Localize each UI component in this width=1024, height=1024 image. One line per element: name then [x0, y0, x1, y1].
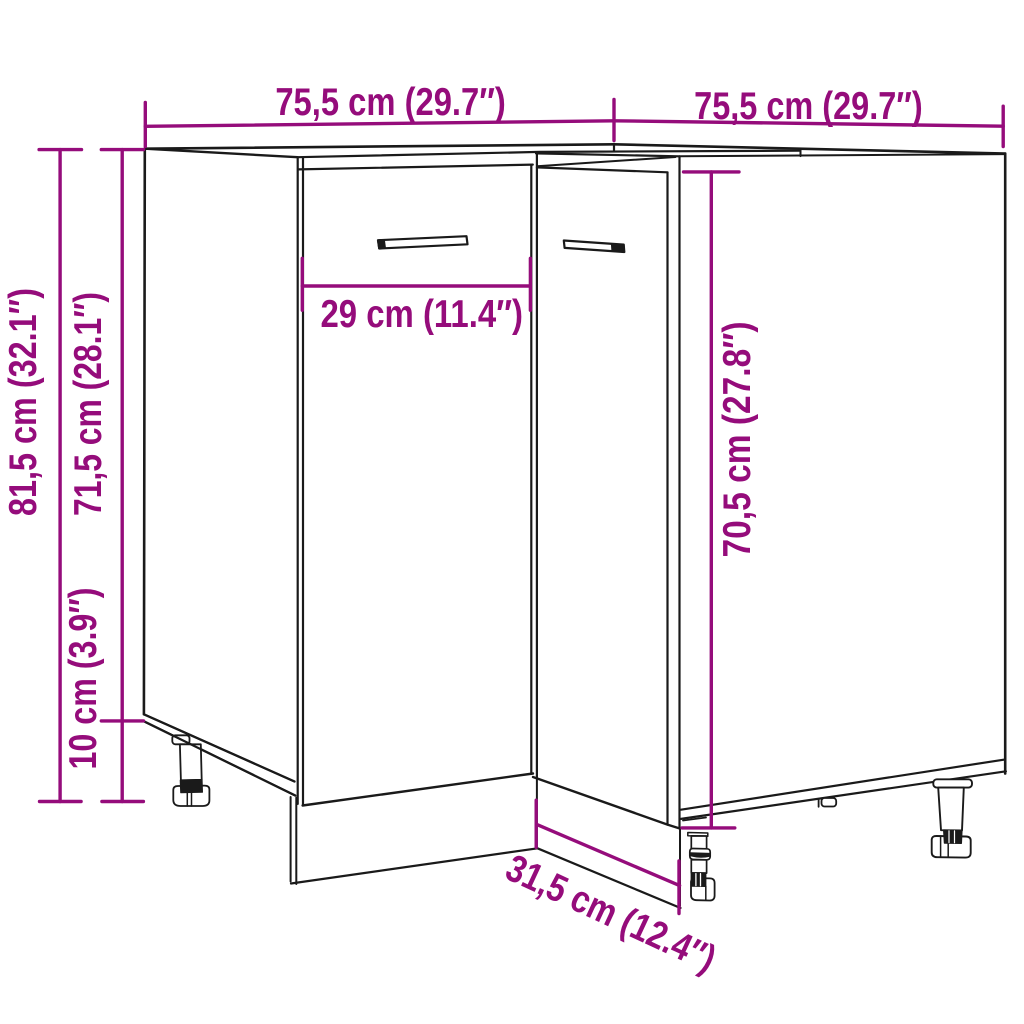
svg-text:71,5 cm (28.1″): 71,5 cm (28.1″) [67, 292, 110, 516]
svg-text:75,5 cm (29.7″): 75,5 cm (29.7″) [694, 85, 923, 128]
svg-text:10 cm (3.9″): 10 cm (3.9″) [62, 588, 105, 770]
svg-text:75,5 cm (29.7″): 75,5 cm (29.7″) [275, 81, 506, 124]
svg-text:29 cm (11.4″): 29 cm (11.4″) [320, 293, 523, 336]
svg-text:70,5 cm (27.8″): 70,5 cm (27.8″) [716, 322, 759, 558]
svg-text:81,5 cm (32.1″): 81,5 cm (32.1″) [2, 288, 45, 516]
